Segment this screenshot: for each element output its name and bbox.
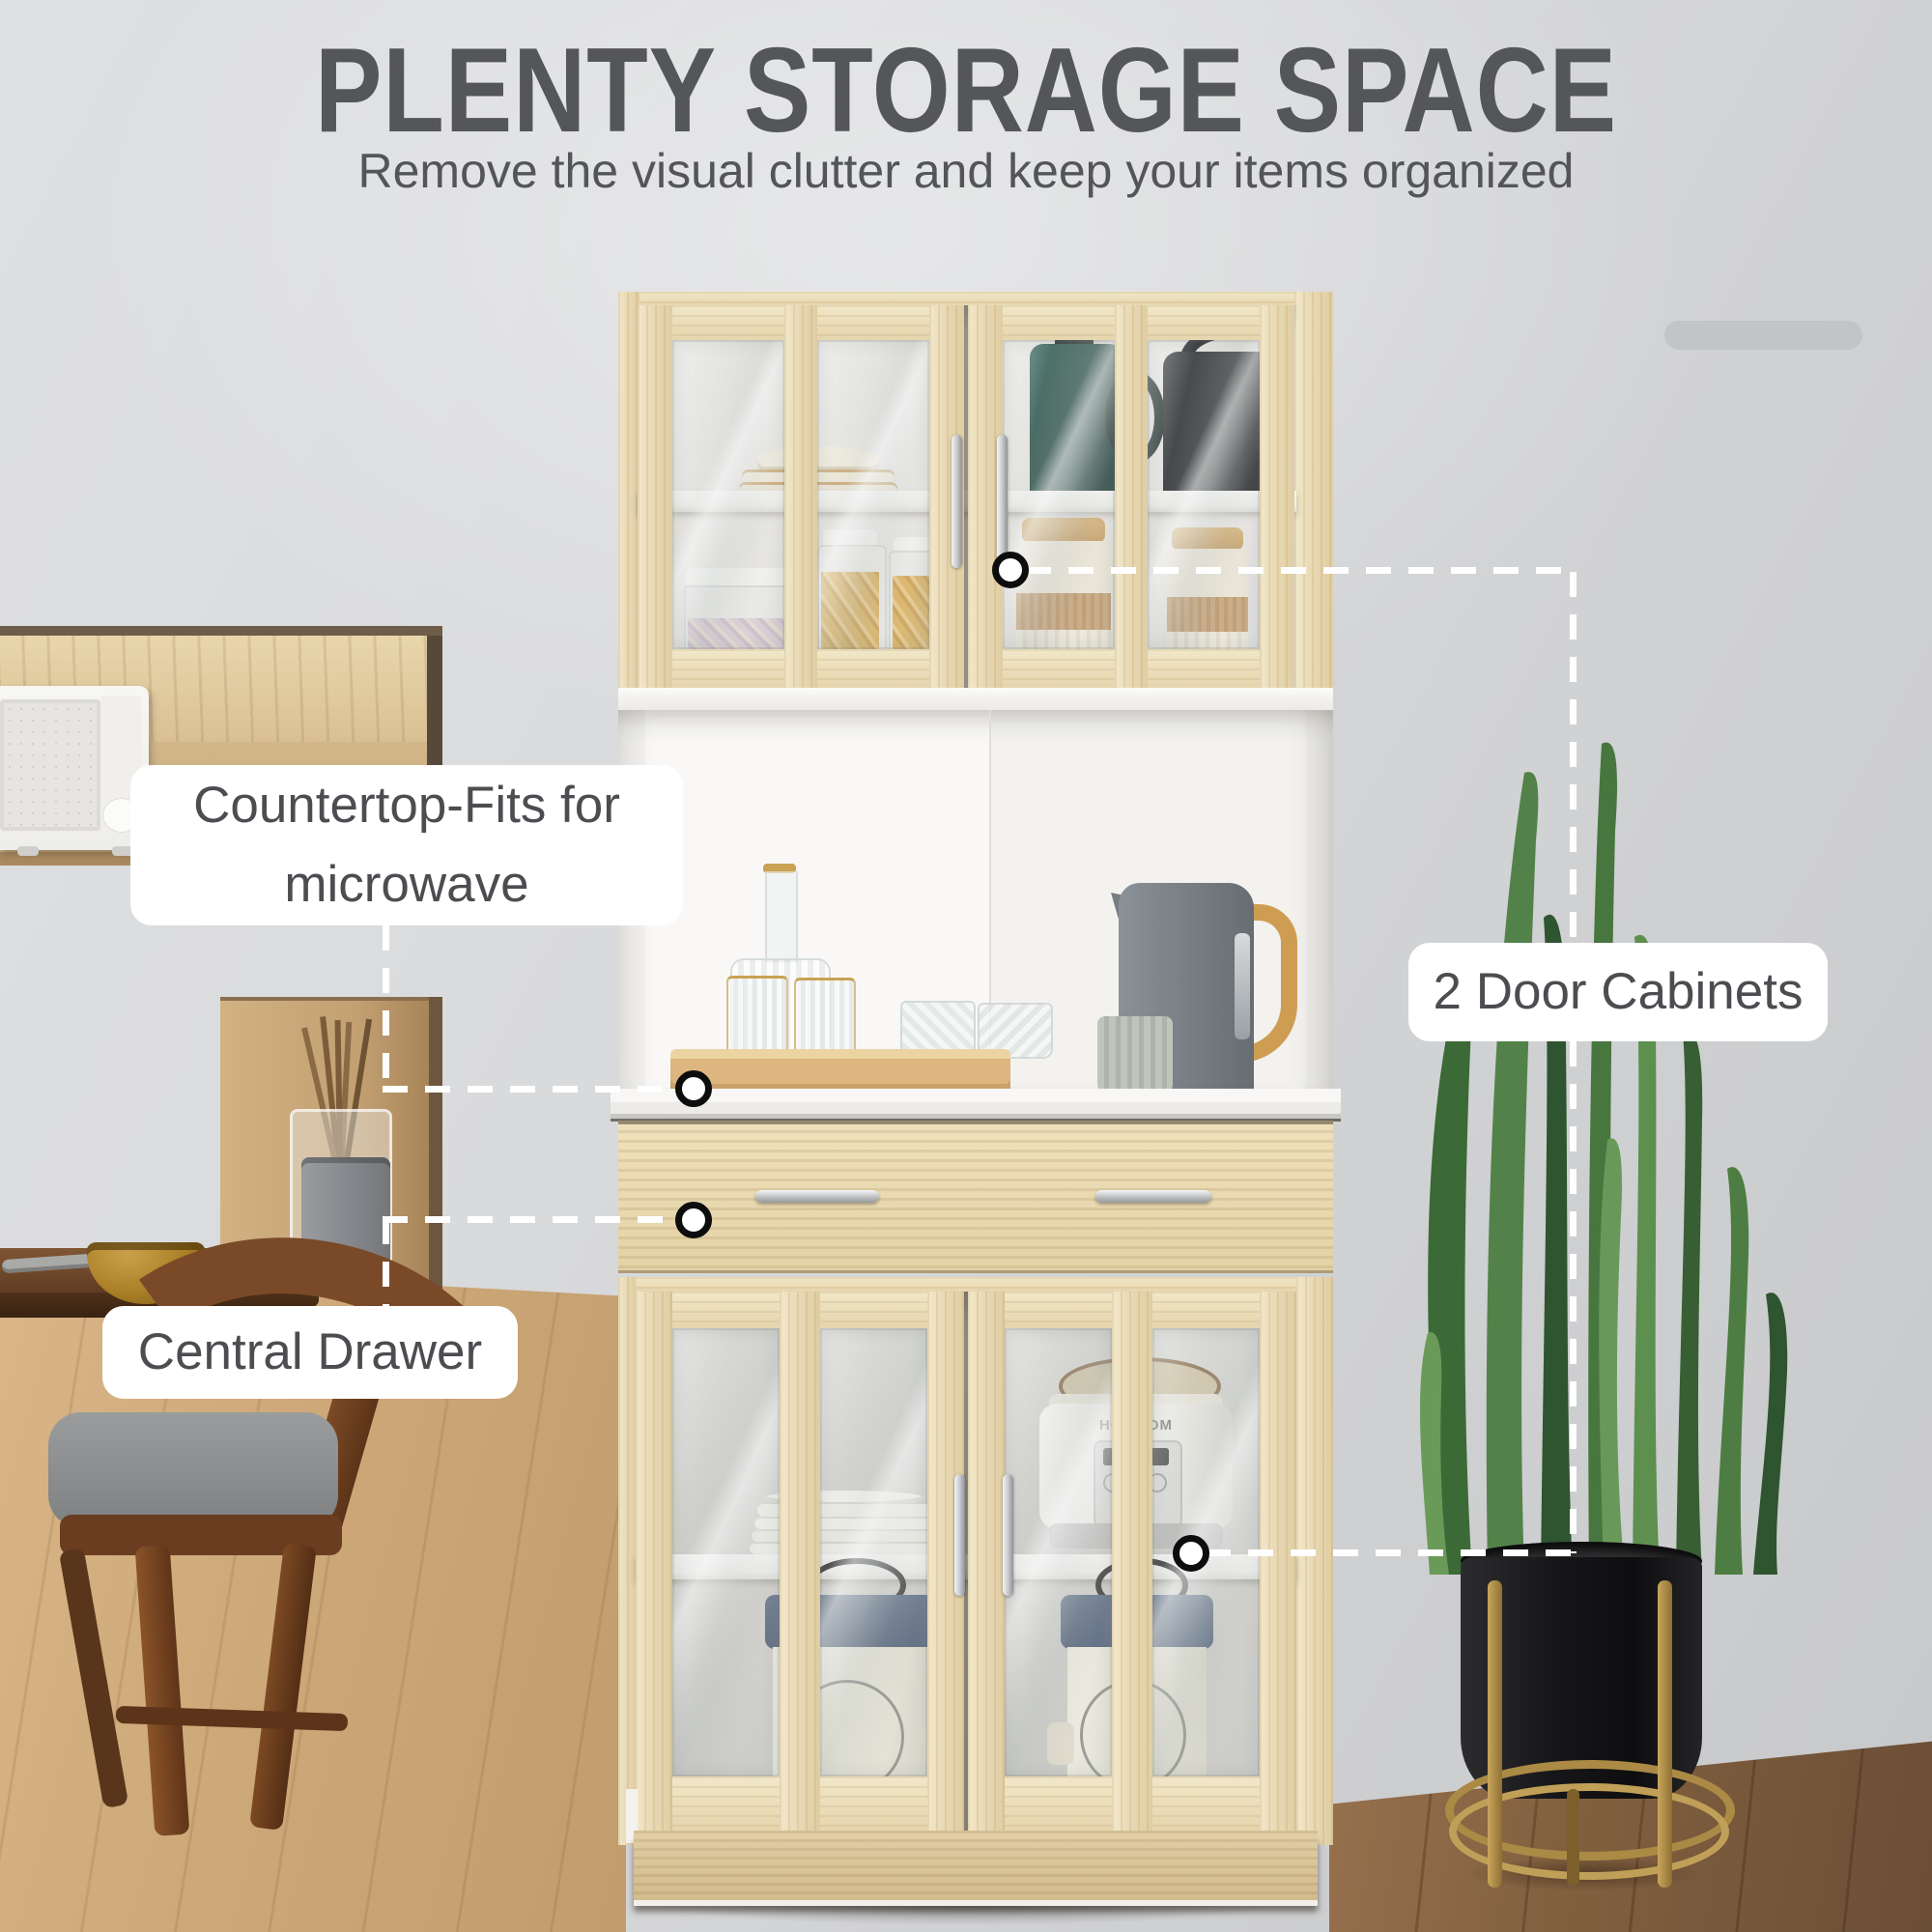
glass-pane: [817, 340, 929, 649]
drawer-handle-right: [1095, 1190, 1211, 1203]
callout-marker-cabinets-top: [992, 552, 1029, 588]
callout-marker-countertop: [675, 1070, 712, 1107]
callout-line-countertop: [383, 1086, 678, 1093]
callout-box-countertop: Countertop-Fits for microwave: [130, 765, 683, 925]
chair-cushion: [48, 1412, 338, 1528]
callout-box-drawer: Central Drawer: [102, 1306, 518, 1399]
callout-line-drawer: [383, 1216, 678, 1223]
callout-label: Central Drawer: [138, 1313, 482, 1392]
hutch-door-left: [638, 305, 964, 688]
base-carcass-right: [1296, 1277, 1333, 1845]
hutch-carcass-left: [618, 292, 639, 690]
snake-plant-leaves: [1372, 715, 1835, 1604]
callout-label: 2 Door Cabinets: [1434, 952, 1804, 1032]
glass-pane: [820, 1328, 927, 1776]
microwave-door: [0, 699, 100, 831]
callout-line-countertop: [383, 925, 389, 1092]
base-handle-right: [1003, 1474, 1013, 1596]
callout-box-cabinets: 2 Door Cabinets: [1408, 943, 1828, 1041]
base-carcass-left: [618, 1277, 636, 1845]
plant-stand-leg: [1567, 1789, 1579, 1886]
ribbed-glass: [726, 976, 788, 1060]
callout-line-cabinets: [1026, 567, 1577, 574]
drawer-handle-left: [755, 1190, 879, 1203]
base-door-left: [636, 1292, 964, 1831]
microwave-foot: [17, 846, 39, 856]
microwave: [0, 686, 149, 850]
hutch-door-right: [968, 305, 1294, 688]
base-cabinet: HOMCOM: [618, 1277, 1333, 1845]
glass-pane: [1003, 340, 1115, 649]
hutch-handle-right: [997, 435, 1008, 568]
hutch-cabinet: [618, 292, 1333, 710]
base-handle-left: [954, 1474, 965, 1596]
callout-line-cabinets: [1206, 1549, 1577, 1556]
hutch-carcass-right: [1294, 292, 1333, 690]
hutch-handle-left: [952, 435, 962, 568]
plinth: [634, 1831, 1318, 1900]
callout-marker-cabinets-bottom: [1173, 1535, 1209, 1572]
base-door-right: [968, 1292, 1296, 1831]
plant-stand-leg: [1658, 1580, 1672, 1888]
glass-pane: [1148, 340, 1260, 649]
hutch-underside: [618, 688, 1333, 710]
page-title: PLENTY STORAGE SPACE: [155, 25, 1777, 156]
glass-pane: [672, 340, 784, 649]
callout-line-cabinets: [1570, 1041, 1577, 1553]
callout-marker-drawer: [675, 1202, 712, 1238]
hutch-door-gap: [964, 305, 968, 688]
ribbed-glass: [794, 978, 856, 1060]
callout-line-drawer: [383, 1219, 389, 1308]
plant-stand-leg: [1488, 1580, 1502, 1888]
gray-cup: [1097, 1016, 1173, 1097]
wooden-tray: [670, 1049, 1010, 1094]
decor-bar: [1664, 321, 1862, 350]
glass-pane: [672, 1328, 780, 1776]
glass-pane: [1005, 1328, 1112, 1776]
countertop: [611, 1089, 1341, 1119]
callout-line-cabinets: [1570, 572, 1577, 943]
central-drawer: [618, 1121, 1333, 1273]
callout-label: Countertop-Fits for microwave: [156, 766, 658, 924]
base-carcass-top: [618, 1277, 1333, 1292]
page-subtitle: Remove the visual clutter and keep your …: [0, 143, 1932, 199]
